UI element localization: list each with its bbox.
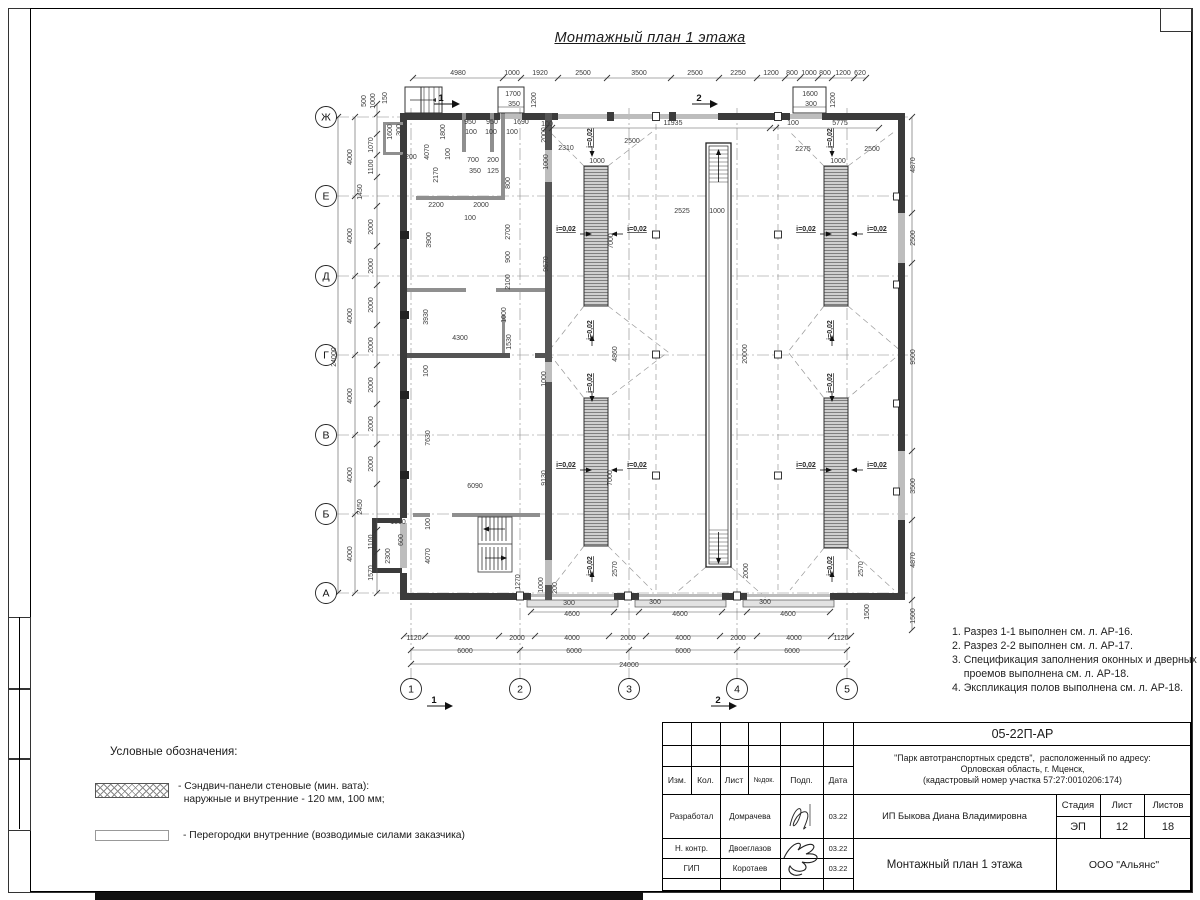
dim-label: 3500 (910, 478, 917, 494)
stamp-sheet-title: Монтажный план 1 этажа (853, 838, 1056, 892)
dim-label: 9500 (910, 349, 917, 365)
dim-label: 2000 (473, 202, 489, 209)
company-name: ООО "Альянс" (1056, 838, 1192, 892)
dim-label: 1600 (802, 91, 818, 98)
dim-label: 2200 (428, 202, 444, 209)
signature-2 (780, 836, 823, 880)
stamp-date-0: 03.22 (823, 794, 853, 838)
section-number: 2 (715, 695, 720, 706)
dim-label: 1200 (401, 154, 417, 161)
dim-label: 2000 (620, 635, 636, 642)
axis-label: Ж (321, 112, 331, 124)
dim-label: 2500 (910, 230, 917, 246)
dim-label: 1500 (910, 608, 917, 624)
dim-label: 1200 (763, 70, 779, 77)
dim-label: 7000 (608, 233, 615, 249)
dim-label: 600 (398, 534, 405, 546)
dim-label: 500 (361, 95, 368, 107)
dim-label: 950 (486, 119, 498, 126)
dim-label: 2700 (505, 224, 512, 240)
dim-label: 2275 (795, 146, 811, 153)
doc-number: 05-22П-АР (853, 723, 1192, 745)
inspection-pit (706, 143, 731, 567)
axis-label: Е (322, 191, 329, 203)
slope-label: i=0,02 (627, 226, 647, 233)
dim-label: 300 (396, 124, 403, 136)
dim-label: 2500 (624, 138, 640, 145)
sheets-label: Листов (1144, 794, 1192, 816)
signature-1 (780, 796, 823, 836)
project-name: "Парк автотранспортных средств", располо… (853, 745, 1192, 794)
dim-label: 1000 (538, 577, 545, 593)
stamp-role-2: ГИП (663, 858, 720, 878)
dim-label: 7630 (425, 430, 432, 446)
dim-label: 350 (508, 101, 520, 108)
slope-label: i=0,02 (627, 462, 647, 469)
entrance-porches (405, 87, 826, 113)
dim-label: 125 (487, 168, 499, 175)
dim-label: 2500 (864, 146, 880, 153)
axis-label: Г (323, 350, 329, 362)
dim-label: 4000 (347, 149, 354, 165)
dim-label: 3500 (631, 70, 647, 77)
slope-label: i=0,02 (796, 462, 816, 469)
dim-label: 1000 (504, 70, 520, 77)
stage-value: ЭП (1056, 816, 1100, 838)
dim-label: 620 (854, 70, 866, 77)
stamp-date-2: 03.22 (823, 858, 853, 878)
dim-label: 1690 (513, 119, 529, 126)
dim-label: 100 (425, 518, 432, 530)
dim-label: 2000 (368, 456, 375, 472)
slope-arrow (851, 468, 863, 473)
dim-label: 6000 (566, 648, 582, 655)
stamp-col-2: Лист (720, 766, 748, 794)
stamp-name-2: Коротаев (720, 858, 780, 878)
dim-label: 2500 (575, 70, 591, 77)
stamp-date-1: 03.22 (823, 838, 853, 858)
dim-label: 1270 (515, 574, 522, 590)
slope-label: i=0,02 (827, 128, 834, 148)
dim-label: 1100 (368, 534, 375, 549)
dim-label: 1000 (541, 371, 548, 387)
sheet-number: 12 (1100, 816, 1144, 838)
dim-label: 4870 (910, 157, 917, 173)
staircase (478, 517, 512, 572)
legend-swatch-sandwich (95, 783, 169, 798)
dim-label: 4070 (424, 144, 431, 160)
dim-label: 3900 (426, 232, 433, 248)
dim-label: 6000 (457, 648, 473, 655)
dim-label: 1200 (531, 92, 538, 108)
dim-label: 1500 (390, 519, 406, 526)
corner-cell (1160, 8, 1192, 32)
dim-label: 9130 (541, 470, 548, 486)
dim-label: 1200 (830, 92, 837, 108)
slope-label: i=0,02 (867, 462, 887, 469)
dim-label: 1000 (801, 70, 817, 77)
dim-label: 950 (464, 119, 476, 126)
dim-label: 300 (649, 599, 661, 606)
dimension-labels: 4980100019202500350025002250120080010008… (331, 70, 917, 706)
dim-label: 1450 (357, 184, 364, 200)
dim-label: 4600 (564, 611, 580, 618)
title-block: 05-22П-АР "Парк автотранспортных средств… (662, 722, 1191, 891)
dim-label: 7000 (607, 470, 614, 486)
axis-label: Д (322, 271, 329, 283)
axis-label: 4 (734, 684, 740, 696)
dim-label: 2000 (509, 635, 525, 642)
dim-label: 800 (505, 177, 512, 189)
client-name: ИП Быкова Диана Владимировна (853, 794, 1056, 838)
legend-heading: Условные обозначения: (110, 746, 237, 758)
axis-label: 1 (408, 684, 414, 696)
dim-label: 1120 (833, 635, 848, 642)
drawing-title: Монтажный план 1 этажа (450, 30, 850, 46)
slope-label: i=0,02 (587, 128, 594, 148)
dim-label: 2310 (558, 145, 574, 152)
floor-plan: ЖЕДГВБА12345 498010001920250035002500225… (300, 55, 960, 720)
dim-label: 1500 (864, 604, 871, 620)
dim-label: 1600 (387, 124, 394, 140)
dim-label: 4000 (347, 228, 354, 244)
dim-label: 4000 (347, 467, 354, 483)
dim-label: 6090 (467, 483, 483, 490)
section-marks (427, 100, 737, 710)
dim-label: 2000 (743, 563, 750, 579)
dim-label: 350 (469, 168, 481, 175)
dim-label: 4870 (910, 552, 917, 568)
dim-label: 1800 (440, 124, 447, 140)
dim-label: 3930 (423, 309, 430, 325)
dim-label: 2570 (612, 561, 619, 577)
stamp-col-5: Дата (823, 766, 853, 794)
dim-label: 1000 (543, 154, 550, 170)
dim-label: 2000 (541, 127, 548, 143)
dim-label: 2570 (858, 561, 865, 577)
dim-label: 2450 (357, 499, 364, 515)
stamp-name-0: Домрачева (720, 794, 780, 838)
dim-label: 6000 (784, 648, 800, 655)
section-number: 1 (431, 695, 437, 706)
stamp-col-3: №док. (748, 766, 780, 794)
slope-arrow (851, 232, 863, 237)
sheets-total: 18 (1144, 816, 1192, 838)
bottom-strip (95, 892, 643, 900)
dim-label: 4000 (454, 635, 470, 642)
dim-label: 4070 (425, 548, 432, 564)
dim-label: 5775 (832, 120, 848, 127)
stamp-col-1: Кол. (691, 766, 720, 794)
dim-label: 1570 (368, 565, 375, 581)
dim-label: 24000 (619, 662, 639, 669)
dim-label: 2000 (368, 297, 375, 313)
dim-label: 4980 (450, 70, 466, 77)
stage-label: Стадия (1056, 794, 1100, 816)
dim-label: 100 (464, 215, 476, 222)
dim-label: 4000 (347, 388, 354, 404)
slope-label: i=0,02 (587, 373, 594, 393)
dim-label: 1000 (370, 93, 377, 109)
slope-label: i=0,02 (827, 320, 834, 340)
dim-label: 300 (759, 599, 771, 606)
dim-label: 300 (805, 101, 817, 108)
dim-label: 100 (541, 121, 553, 128)
dim-label: 100 (787, 120, 799, 127)
legend-label-sandwich: - Сэндвич-панели стеновые (мин. вата): н… (178, 781, 385, 806)
slope-label: i=0,02 (587, 556, 594, 576)
dim-label: 2170 (433, 167, 440, 183)
dim-label: 9670 (543, 256, 550, 272)
axis-label: В (322, 430, 329, 442)
axis-label: 2 (517, 684, 523, 696)
dim-label: 2000 (368, 258, 375, 274)
slope-label: i=0,02 (827, 556, 834, 576)
dim-label: 1100 (368, 159, 375, 174)
dim-label: 2525 (674, 208, 690, 215)
dim-label: 800 (819, 70, 831, 77)
dim-label: 2000 (368, 337, 375, 353)
section-number: 2 (696, 93, 701, 104)
dim-label: 2000 (368, 377, 375, 393)
dim-label: 4600 (780, 611, 796, 618)
slope-label: i=0,02 (867, 226, 887, 233)
dim-label: 1000 (501, 307, 508, 323)
dim-label: 4000 (564, 635, 580, 642)
dim-label: 1120 (406, 635, 421, 642)
dim-label: 2100 (505, 274, 512, 290)
axis-label: 3 (626, 684, 632, 696)
legend-swatch-partition (95, 830, 169, 841)
slope-label: i=0,02 (796, 226, 816, 233)
dim-label: 900 (505, 251, 512, 263)
dim-label: 1000 (589, 158, 605, 165)
dim-label: 1700 (505, 91, 521, 98)
dim-label: 6000 (675, 648, 691, 655)
section-number: 1 (438, 93, 444, 104)
dim-label: 20000 (742, 344, 749, 364)
stamp-role-0: Разработал (663, 794, 720, 838)
dim-label: 2000 (368, 416, 375, 432)
dim-label: 4000 (786, 635, 802, 642)
dim-label: 300 (563, 600, 575, 607)
notes: 1. Разрез 1-1 выполнен см. л. АР-16. 2. … (952, 625, 1197, 695)
dim-label: 1530 (506, 334, 513, 350)
dim-label: 1070 (368, 137, 375, 153)
dim-label: 4300 (452, 335, 468, 342)
dim-label: 4000 (675, 635, 691, 642)
dim-label: 700 (467, 157, 479, 164)
slope-label: i=0,02 (556, 462, 576, 469)
dim-label: 4600 (672, 611, 688, 618)
dim-label: 1920 (532, 70, 548, 77)
legend-label-partition: - Перегородки внутренние (возводимые сил… (183, 830, 465, 843)
dim-label: 200 (552, 582, 559, 594)
stamp-col-0: Изм. (663, 766, 691, 794)
dim-label: 1000 (709, 208, 725, 215)
stamp-name-1: Двоеглазов (720, 838, 780, 858)
slope-label: i=0,02 (587, 320, 594, 340)
dim-label: 100 (445, 148, 452, 160)
dim-label: 11935 (664, 120, 683, 127)
slope-label: i=0,02 (556, 226, 576, 233)
stamp-col-4: Подп. (780, 766, 823, 794)
dim-label: 2000 (368, 219, 375, 235)
edge-stamp-divider (19, 617, 20, 829)
dim-label: 2500 (687, 70, 703, 77)
dim-label: 800 (786, 70, 798, 77)
dim-label: 2250 (730, 70, 746, 77)
dim-label: 100 (465, 129, 477, 136)
axis-label: Б (323, 509, 330, 521)
dim-label: 100 (423, 365, 430, 377)
dim-label: 150 (382, 92, 389, 104)
dim-label: 200 (487, 157, 499, 164)
dim-label: 24000 (331, 347, 338, 367)
dim-label: 4000 (347, 308, 354, 324)
dim-label: 2000 (730, 635, 746, 642)
dim-label: 1200 (835, 70, 851, 77)
dimension-lines (335, 75, 915, 667)
dim-label: 1000 (830, 158, 846, 165)
dim-label: 2300 (385, 548, 392, 564)
axis-label: А (322, 588, 329, 600)
stamp-role-1: Н. контр. (663, 838, 720, 858)
dim-label: 4000 (347, 546, 354, 562)
dim-label: 100 (485, 129, 497, 136)
slope-label: i=0,02 (827, 373, 834, 393)
sheet-label: Лист (1100, 794, 1144, 816)
axis-label: 5 (844, 684, 850, 696)
axis-grid-lines (337, 108, 908, 678)
dim-label: 4860 (612, 346, 619, 362)
dim-label: 100 (506, 129, 518, 136)
